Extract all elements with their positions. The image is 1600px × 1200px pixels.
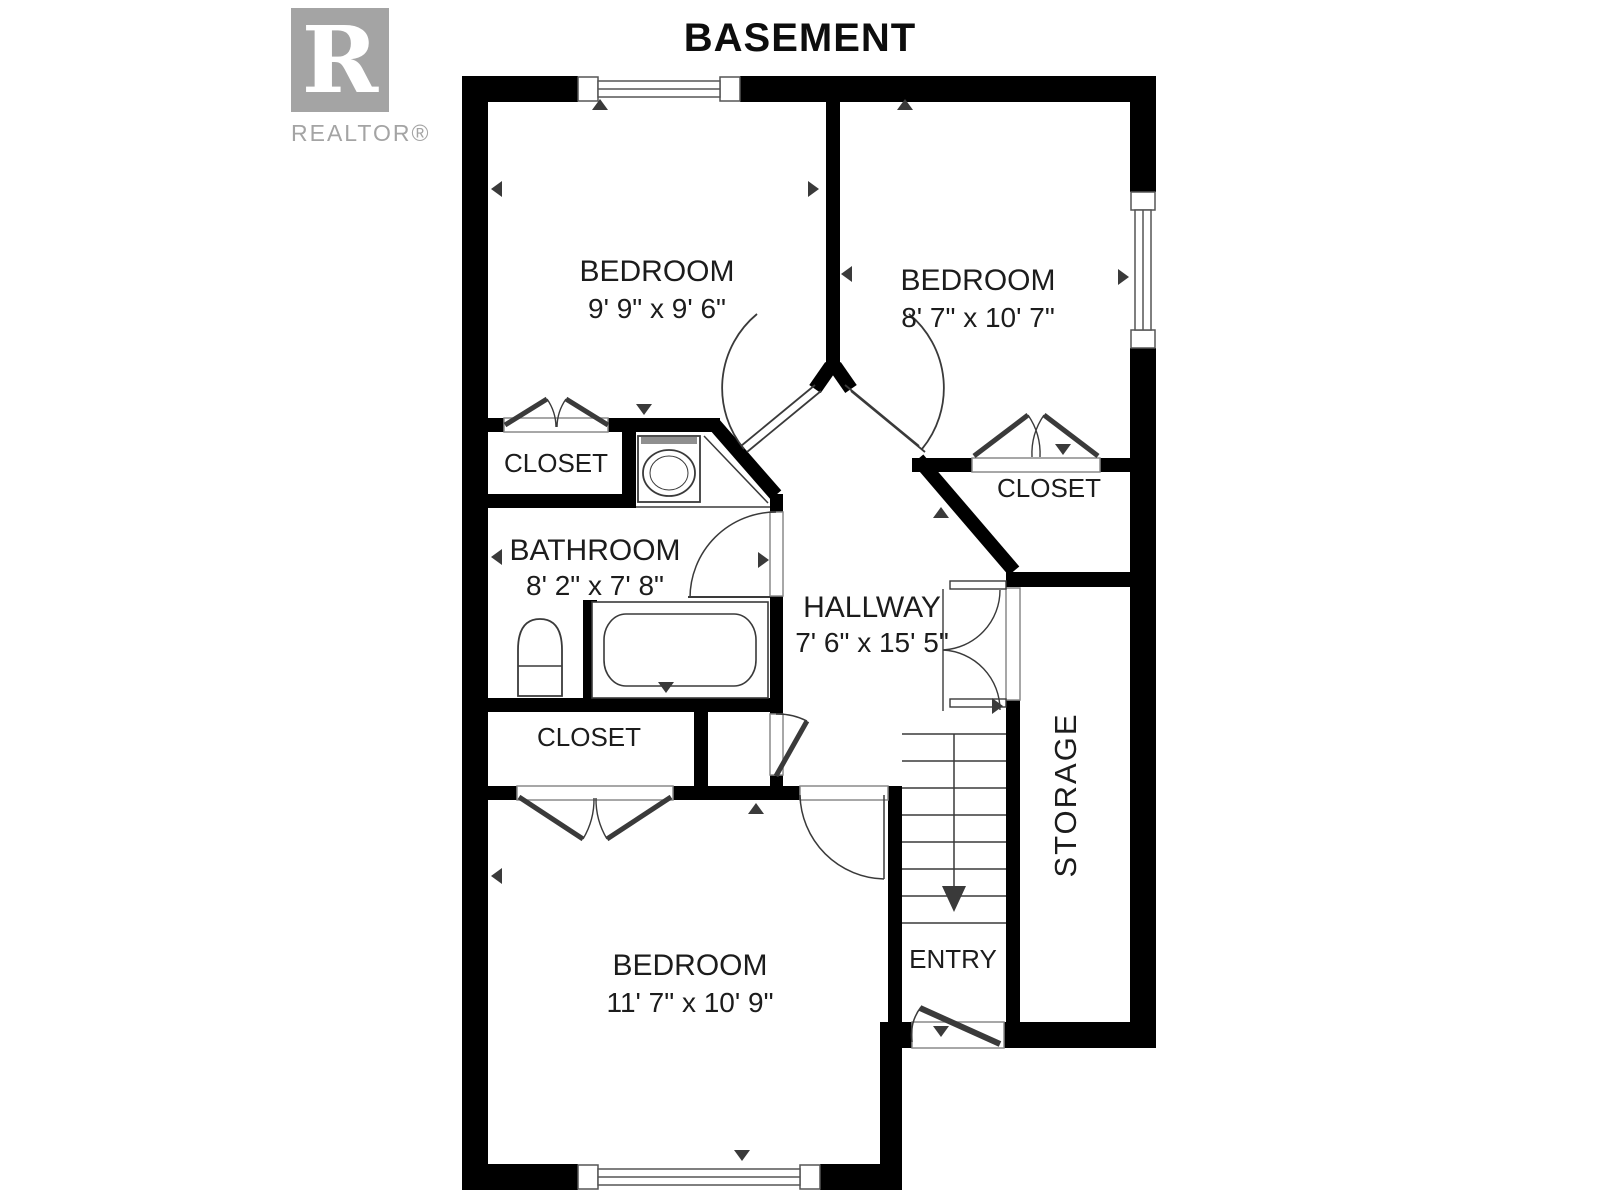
wall-segment (608, 418, 720, 432)
door-sill (1006, 588, 1020, 700)
marker-up-icon (933, 507, 949, 518)
marker-left-icon (491, 181, 502, 197)
room-dims-hallway: 7' 6" x 15' 5" (795, 627, 949, 658)
marker-down-icon (636, 404, 652, 415)
floorplan-page: R REALTOR® BASEMENT (0, 0, 1600, 1200)
floorplan-drawing: BEDROOM 9' 9" x 9' 6" BEDROOM 8' 7" x 10… (0, 0, 1600, 1200)
marker-left-icon (841, 266, 852, 282)
room-label-closet-upper-right: CLOSET (997, 473, 1101, 503)
room-label-closet-lower: CLOSET (537, 722, 641, 752)
wall-segment (770, 775, 783, 788)
room-label-bathroom: BATHROOM (509, 534, 680, 567)
wall-segment (1006, 700, 1020, 1022)
marker-right-icon (758, 552, 769, 568)
marker-left-icon (491, 868, 502, 884)
room-label-closet-upper-left: CLOSET (504, 448, 608, 478)
window-bottom (578, 1164, 820, 1190)
door-closet-upper-right (974, 415, 1098, 457)
door-bedroom2 (845, 314, 944, 452)
sink (638, 436, 700, 502)
window-top (578, 76, 740, 102)
stairs-down-arrow-icon (942, 886, 966, 912)
wall-segment (815, 366, 831, 389)
wall-segment (622, 430, 636, 496)
fixtures (518, 436, 1006, 923)
wall-segment (880, 1048, 902, 1164)
wall-segment (694, 712, 708, 786)
bathtub (592, 602, 768, 698)
wall-segment (488, 786, 517, 800)
door-bathroom (688, 512, 776, 598)
wall-segment (673, 786, 800, 800)
marker-down-icon (1055, 444, 1071, 455)
door-closet-lower (519, 797, 671, 839)
room-dims-bedroom3: 11' 7" x 10' 9" (606, 987, 773, 1018)
marker-down-icon (734, 1150, 750, 1161)
wall-segment (826, 102, 840, 368)
door-storage-double (943, 581, 1006, 711)
wall-segment (1130, 348, 1156, 1048)
toilet (518, 619, 562, 696)
wall-segment (888, 786, 902, 1022)
room-label-entry: ENTRY (909, 944, 997, 974)
wall-segment (462, 76, 488, 1190)
door-sill (800, 786, 888, 800)
stairs (902, 734, 1006, 923)
window-right (1130, 192, 1156, 348)
room-dims-bedroom1: 9' 9" x 9' 6" (588, 293, 726, 324)
room-label-hallway: HALLWAY (803, 591, 941, 624)
wall-segment (770, 596, 783, 714)
wall-segment (835, 366, 851, 389)
door-bedroom3 (800, 795, 884, 879)
marker-up-icon (748, 803, 764, 814)
door-sill (517, 786, 673, 800)
room-label-storage: STORAGE (1048, 712, 1083, 877)
door-bedroom1 (722, 314, 821, 452)
room-dims-bedroom2: 8' 7" x 10' 7" (901, 302, 1055, 333)
marker-right-icon (1118, 269, 1129, 285)
wall-segment (880, 1022, 912, 1048)
marker-right-icon (808, 181, 819, 197)
room-label-bedroom2: BEDROOM (900, 264, 1055, 297)
door-sill (770, 512, 783, 596)
wall-segment (462, 76, 1156, 102)
room-dims-bathroom: 8' 2" x 7' 8" (526, 570, 664, 601)
room-label-bedroom3: BEDROOM (612, 949, 767, 982)
wall-segment (1130, 76, 1156, 192)
wall-segment (1006, 572, 1130, 587)
marker-left-icon (491, 549, 502, 565)
wall-segment (488, 698, 783, 712)
wall-segment (488, 494, 636, 508)
room-label-bedroom1: BEDROOM (579, 255, 734, 288)
door-sill (972, 458, 1100, 472)
wall-segment (1004, 1022, 1156, 1048)
wall-segment (1100, 458, 1130, 472)
